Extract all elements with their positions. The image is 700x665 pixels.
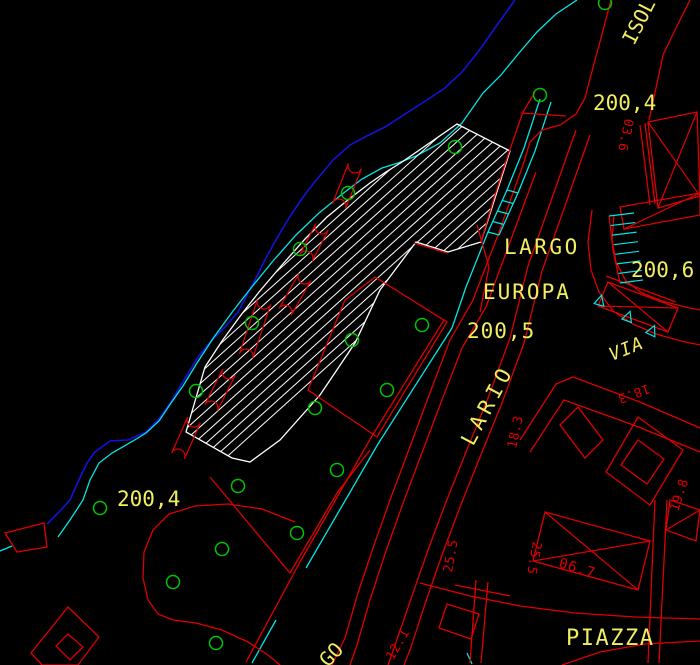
building-outline xyxy=(56,634,83,660)
building-outline xyxy=(621,440,664,484)
building-outline xyxy=(560,407,603,458)
elevation-label-bottom: 200,4 xyxy=(117,487,180,511)
stair-rung xyxy=(488,232,499,235)
stair-rung xyxy=(502,201,513,204)
stair-rung xyxy=(612,232,636,235)
street-label-isola: ISOL xyxy=(617,0,660,48)
tree-symbol xyxy=(246,317,259,330)
road-line xyxy=(143,504,295,665)
road-line xyxy=(246,320,444,662)
stair-rung xyxy=(615,251,639,254)
tree-symbol xyxy=(381,384,394,397)
cad-canvas[interactable]: ISOL200,4LARGOEUROPA200,5200,6VIALARIO20… xyxy=(0,0,700,665)
hatch-line xyxy=(0,94,462,580)
square-label-piazza: PIAZZA xyxy=(566,626,654,651)
map-svg: ISOL200,4LARGOEUROPA200,5200,6VIALARIO20… xyxy=(0,0,700,665)
dim-label-18-3-a: 18.3 xyxy=(505,414,527,450)
tree-symbol xyxy=(416,319,429,332)
road-line xyxy=(523,0,611,165)
hatch-line xyxy=(6,94,546,580)
building-outline xyxy=(606,417,683,505)
stair-rung xyxy=(614,242,638,245)
building-diagonal xyxy=(666,510,700,530)
road-line xyxy=(481,582,488,663)
dim-label-18-3-b: 18.3 xyxy=(615,380,651,405)
road-line xyxy=(414,243,447,253)
building-cross xyxy=(658,112,697,208)
tree-symbol xyxy=(309,402,322,415)
road-line xyxy=(210,450,370,573)
cyan-line xyxy=(58,0,577,537)
road-line xyxy=(521,113,566,116)
building-outline xyxy=(31,607,99,665)
cyan-line xyxy=(499,102,551,235)
street-label-europa: EUROPA xyxy=(483,280,571,304)
building-outline xyxy=(308,277,447,437)
tree-symbol xyxy=(216,543,229,556)
tree-symbol xyxy=(291,527,304,540)
hatch-line xyxy=(0,94,534,580)
tree-symbol xyxy=(167,576,180,589)
tree-symbol xyxy=(210,637,223,650)
cyan-line xyxy=(0,546,12,551)
tree-symbol xyxy=(331,464,344,477)
street-label-largo: LARGO xyxy=(504,235,580,259)
hatch-line xyxy=(0,94,474,580)
tree-symbol xyxy=(94,502,107,515)
shoreline-blue xyxy=(47,0,515,524)
dim-label-03-6: 03.6 xyxy=(614,117,636,153)
road-line xyxy=(659,500,667,663)
dim-label-19-8: 19.8 xyxy=(668,477,693,513)
road-line xyxy=(420,583,700,619)
street-label-via: VIA xyxy=(606,333,647,366)
road-line xyxy=(470,580,476,663)
tree-symbol xyxy=(232,480,245,493)
road-line xyxy=(520,377,700,440)
building-outline xyxy=(5,523,47,552)
elevation-label-right: 200,6 xyxy=(631,258,694,282)
dim-label-25-5-a: 25.5 xyxy=(441,538,462,573)
elevation-label-middle: 200,5 xyxy=(467,319,535,343)
dim-label-25-5-b: 25.5 xyxy=(523,540,544,575)
hatch-group xyxy=(0,94,630,580)
cyan-line xyxy=(252,620,276,663)
building-cross xyxy=(533,541,650,561)
dim-label-06-7: 06.7 xyxy=(557,556,598,582)
dim-label-12-1: 12.1 xyxy=(383,627,413,663)
road-line xyxy=(640,125,650,205)
hatched-building-outline xyxy=(186,124,510,462)
hatch-line xyxy=(0,94,486,580)
elevation-label-top: 200,4 xyxy=(593,91,656,115)
cyan-line xyxy=(488,99,540,232)
